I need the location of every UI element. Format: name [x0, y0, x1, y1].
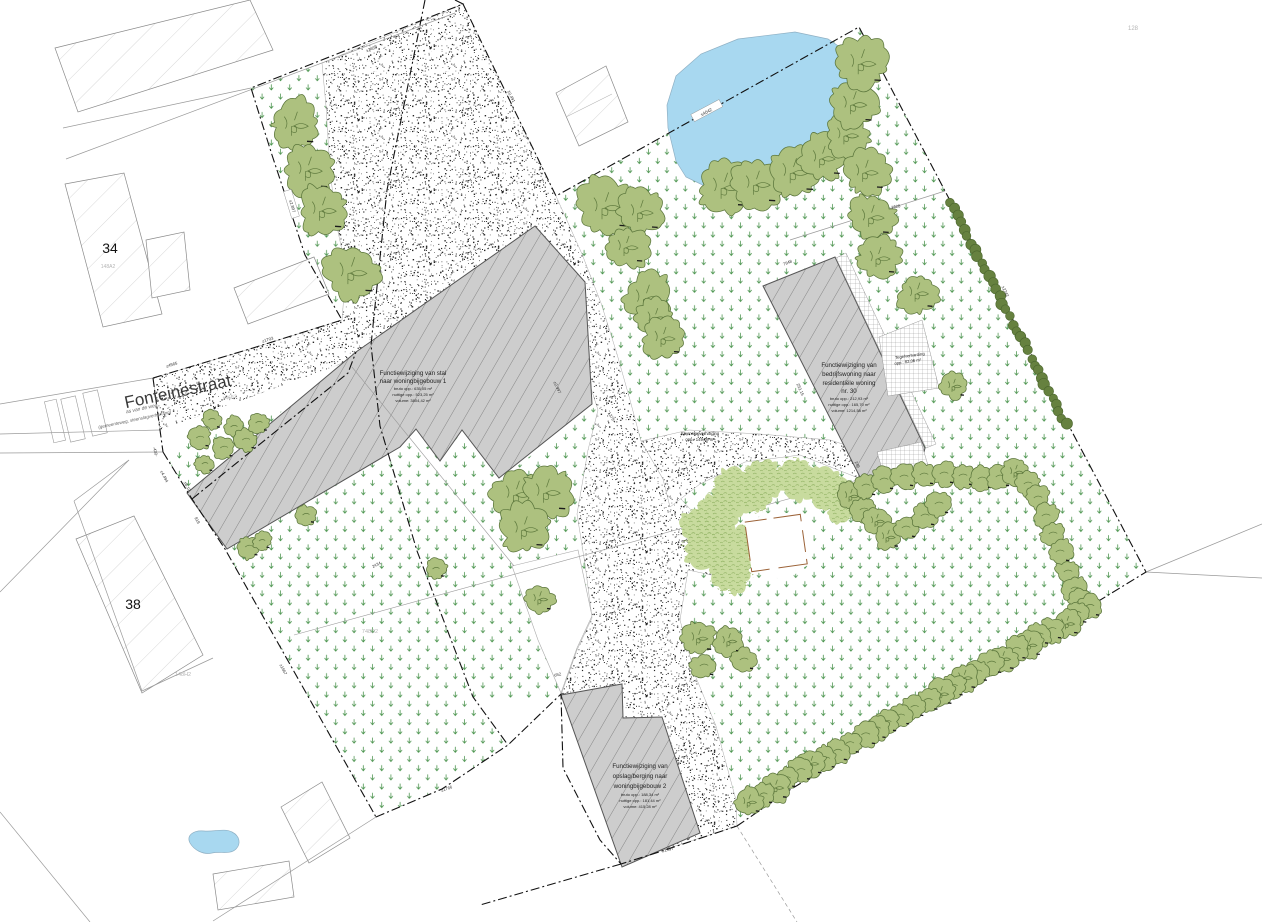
svg-text:nr. 30: nr. 30 — [841, 388, 857, 395]
svg-text:opp.: 149,08 m²: opp.: 149,08 m² — [685, 437, 715, 442]
svg-text:Steenslagverharding: Steenslagverharding — [681, 431, 720, 436]
svg-text:748D2: 748D2 — [362, 629, 378, 635]
svg-text:nuttige opp.: 523,25 m²: nuttige opp.: 523,25 m² — [392, 392, 434, 397]
svg-text:woningbijgebouw 2: woningbijgebouw 2 — [613, 783, 667, 790]
svg-text:volume: 1214,58 m²: volume: 1214,58 m² — [831, 408, 867, 413]
svg-text:nuttige opp.: 181,44 m²: nuttige opp.: 181,44 m² — [619, 798, 661, 803]
svg-text:bedrijfswoning naar: bedrijfswoning naar — [822, 371, 876, 378]
svg-text:128: 128 — [1128, 26, 1139, 32]
svg-text:bruto opp.: 188,34 m²: bruto opp.: 188,34 m² — [621, 792, 660, 797]
svg-text:148H2: 148H2 — [175, 672, 191, 678]
svg-text:34: 34 — [102, 240, 118, 256]
svg-text:Functiewijziging van: Functiewijziging van — [612, 763, 668, 770]
svg-text:residentiële woning: residentiële woning — [823, 380, 877, 387]
svg-text:volume: 415,28 m²: volume: 415,28 m² — [623, 804, 657, 809]
svg-text:volume: 3804,42 m²: volume: 3804,42 m² — [395, 398, 431, 403]
svg-text:Functiewijziging van: Functiewijziging van — [821, 362, 877, 369]
svg-text:148A2: 148A2 — [101, 264, 116, 270]
svg-text:bruto opp.: 635,05 m²: bruto opp.: 635,05 m² — [394, 386, 433, 391]
svg-text:38: 38 — [125, 596, 141, 612]
svg-text:naar woningbijgebouw 1: naar woningbijgebouw 1 — [380, 378, 447, 385]
svg-text:bruto opp.: 212,93 m²: bruto opp.: 212,93 m² — [830, 396, 869, 401]
svg-text:Functiewijziging van stal: Functiewijziging van stal — [380, 370, 447, 377]
svg-text:opslag/berging naar: opslag/berging naar — [613, 773, 668, 780]
svg-text:nuttige opp.: 165,70 m²: nuttige opp.: 165,70 m² — [828, 402, 870, 407]
